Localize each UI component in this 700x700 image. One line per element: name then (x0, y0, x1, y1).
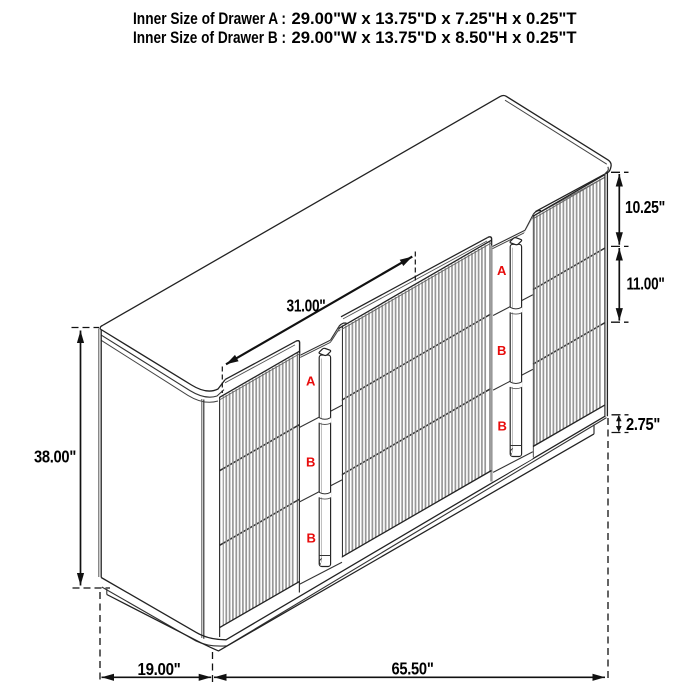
svg-text:B: B (307, 531, 316, 546)
svg-text:11.00": 11.00" (627, 274, 665, 294)
svg-text:B: B (497, 343, 506, 358)
svg-text:31.00": 31.00" (287, 296, 326, 316)
svg-text:Inner Size of Drawer A :: Inner Size of Drawer A : (133, 9, 286, 28)
svg-text:38.00": 38.00" (34, 447, 76, 467)
svg-text:19.00": 19.00" (138, 659, 181, 679)
svg-text:Inner Size of Drawer B :: Inner Size of Drawer B : (133, 28, 286, 47)
svg-text:29.00"W x 13.75"D x 7.25"H x 0: 29.00"W x 13.75"D x 7.25"H x 0.25"T (292, 9, 578, 28)
svg-text:10.25": 10.25" (625, 197, 665, 217)
svg-text:B: B (306, 455, 315, 470)
svg-text:A: A (306, 374, 316, 389)
svg-text:B: B (498, 419, 507, 434)
svg-text:2.75": 2.75" (626, 414, 660, 434)
svg-text:29.00"W x 13.75"D x 8.50"H x 0: 29.00"W x 13.75"D x 8.50"H x 0.25"T (292, 28, 578, 47)
svg-text:A: A (497, 263, 507, 278)
svg-text:65.50": 65.50" (392, 659, 434, 679)
